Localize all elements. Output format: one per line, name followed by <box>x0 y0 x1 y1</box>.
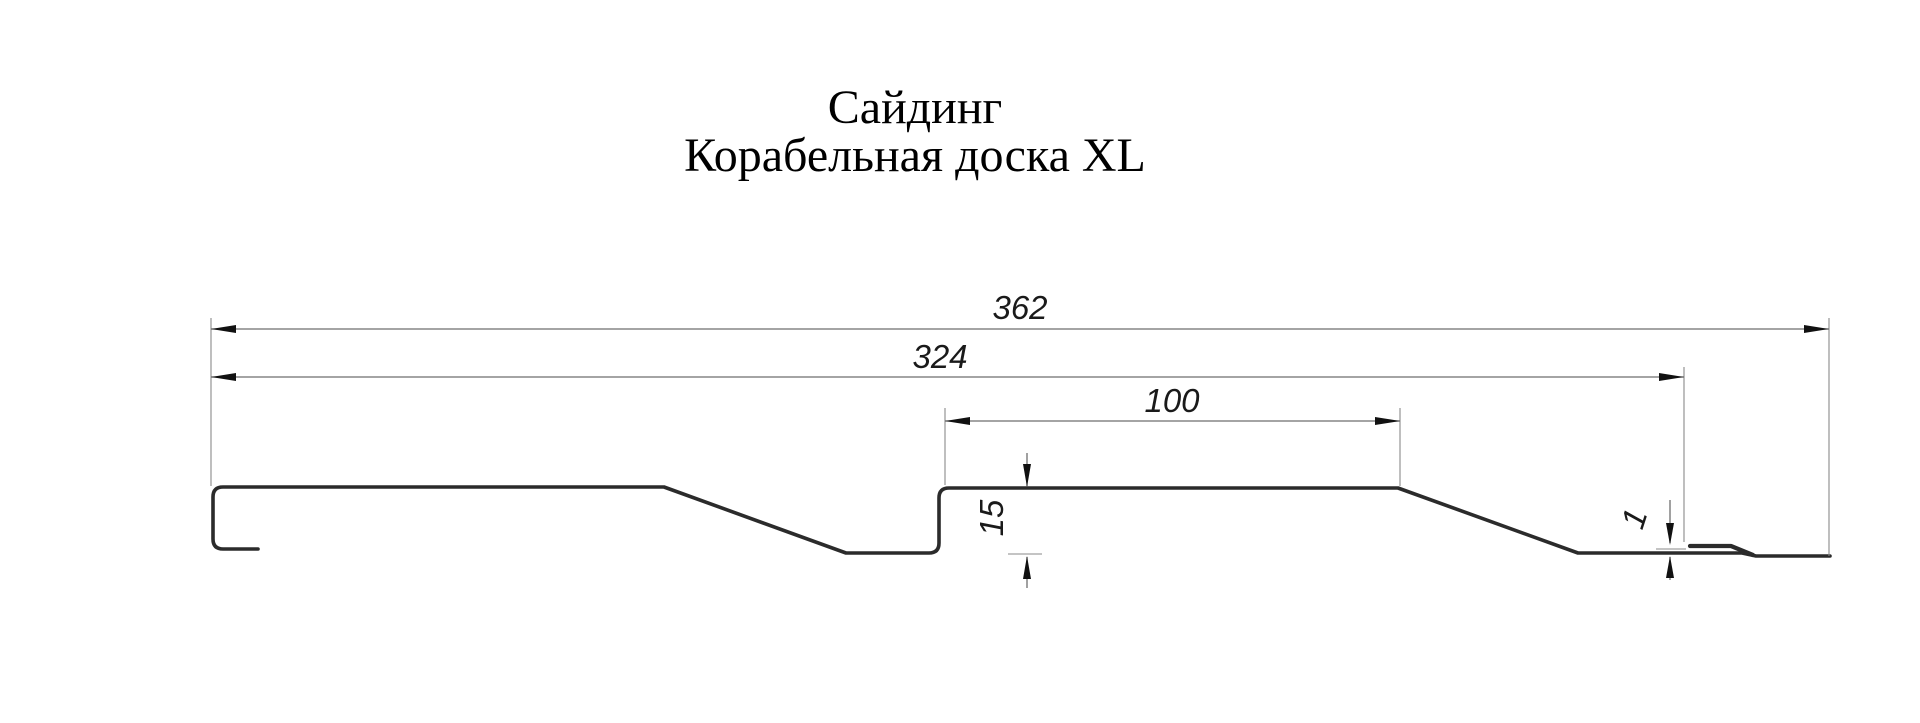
arrowhead-down <box>1023 464 1031 487</box>
profile-sheet-path <box>213 487 1830 556</box>
arrowhead-left <box>945 417 970 425</box>
arrowhead-right <box>1659 373 1684 381</box>
arrowhead-up <box>1023 556 1031 579</box>
arrowhead-right <box>1804 325 1829 333</box>
profile-drawing: 362 324 100 15 <box>0 0 1920 723</box>
arrowhead-down <box>1666 523 1674 545</box>
dimension-overall-width: 362 <box>211 289 1829 556</box>
arrowhead-right <box>1375 417 1400 425</box>
dimension-value-overall-width: 362 <box>992 289 1047 326</box>
dimension-plank-width: 100 <box>945 382 1400 486</box>
drawing-canvas: Сайдинг Корабельная доска XL 362 324 <box>0 0 1920 723</box>
profile-outline <box>213 487 1830 556</box>
arrowhead-left <box>211 325 236 333</box>
arrowhead-up <box>1666 556 1674 578</box>
dimension-value-cover-width: 324 <box>912 338 967 375</box>
dimension-lock-step: 1 <box>1614 500 1686 580</box>
dimension-value-plank-width: 100 <box>1144 382 1200 419</box>
dimension-profile-depth: 15 <box>973 453 1042 588</box>
arrowhead-left <box>211 373 236 381</box>
dimension-value-profile-depth: 15 <box>973 499 1010 536</box>
dimension-value-lock-step: 1 <box>1614 504 1655 533</box>
